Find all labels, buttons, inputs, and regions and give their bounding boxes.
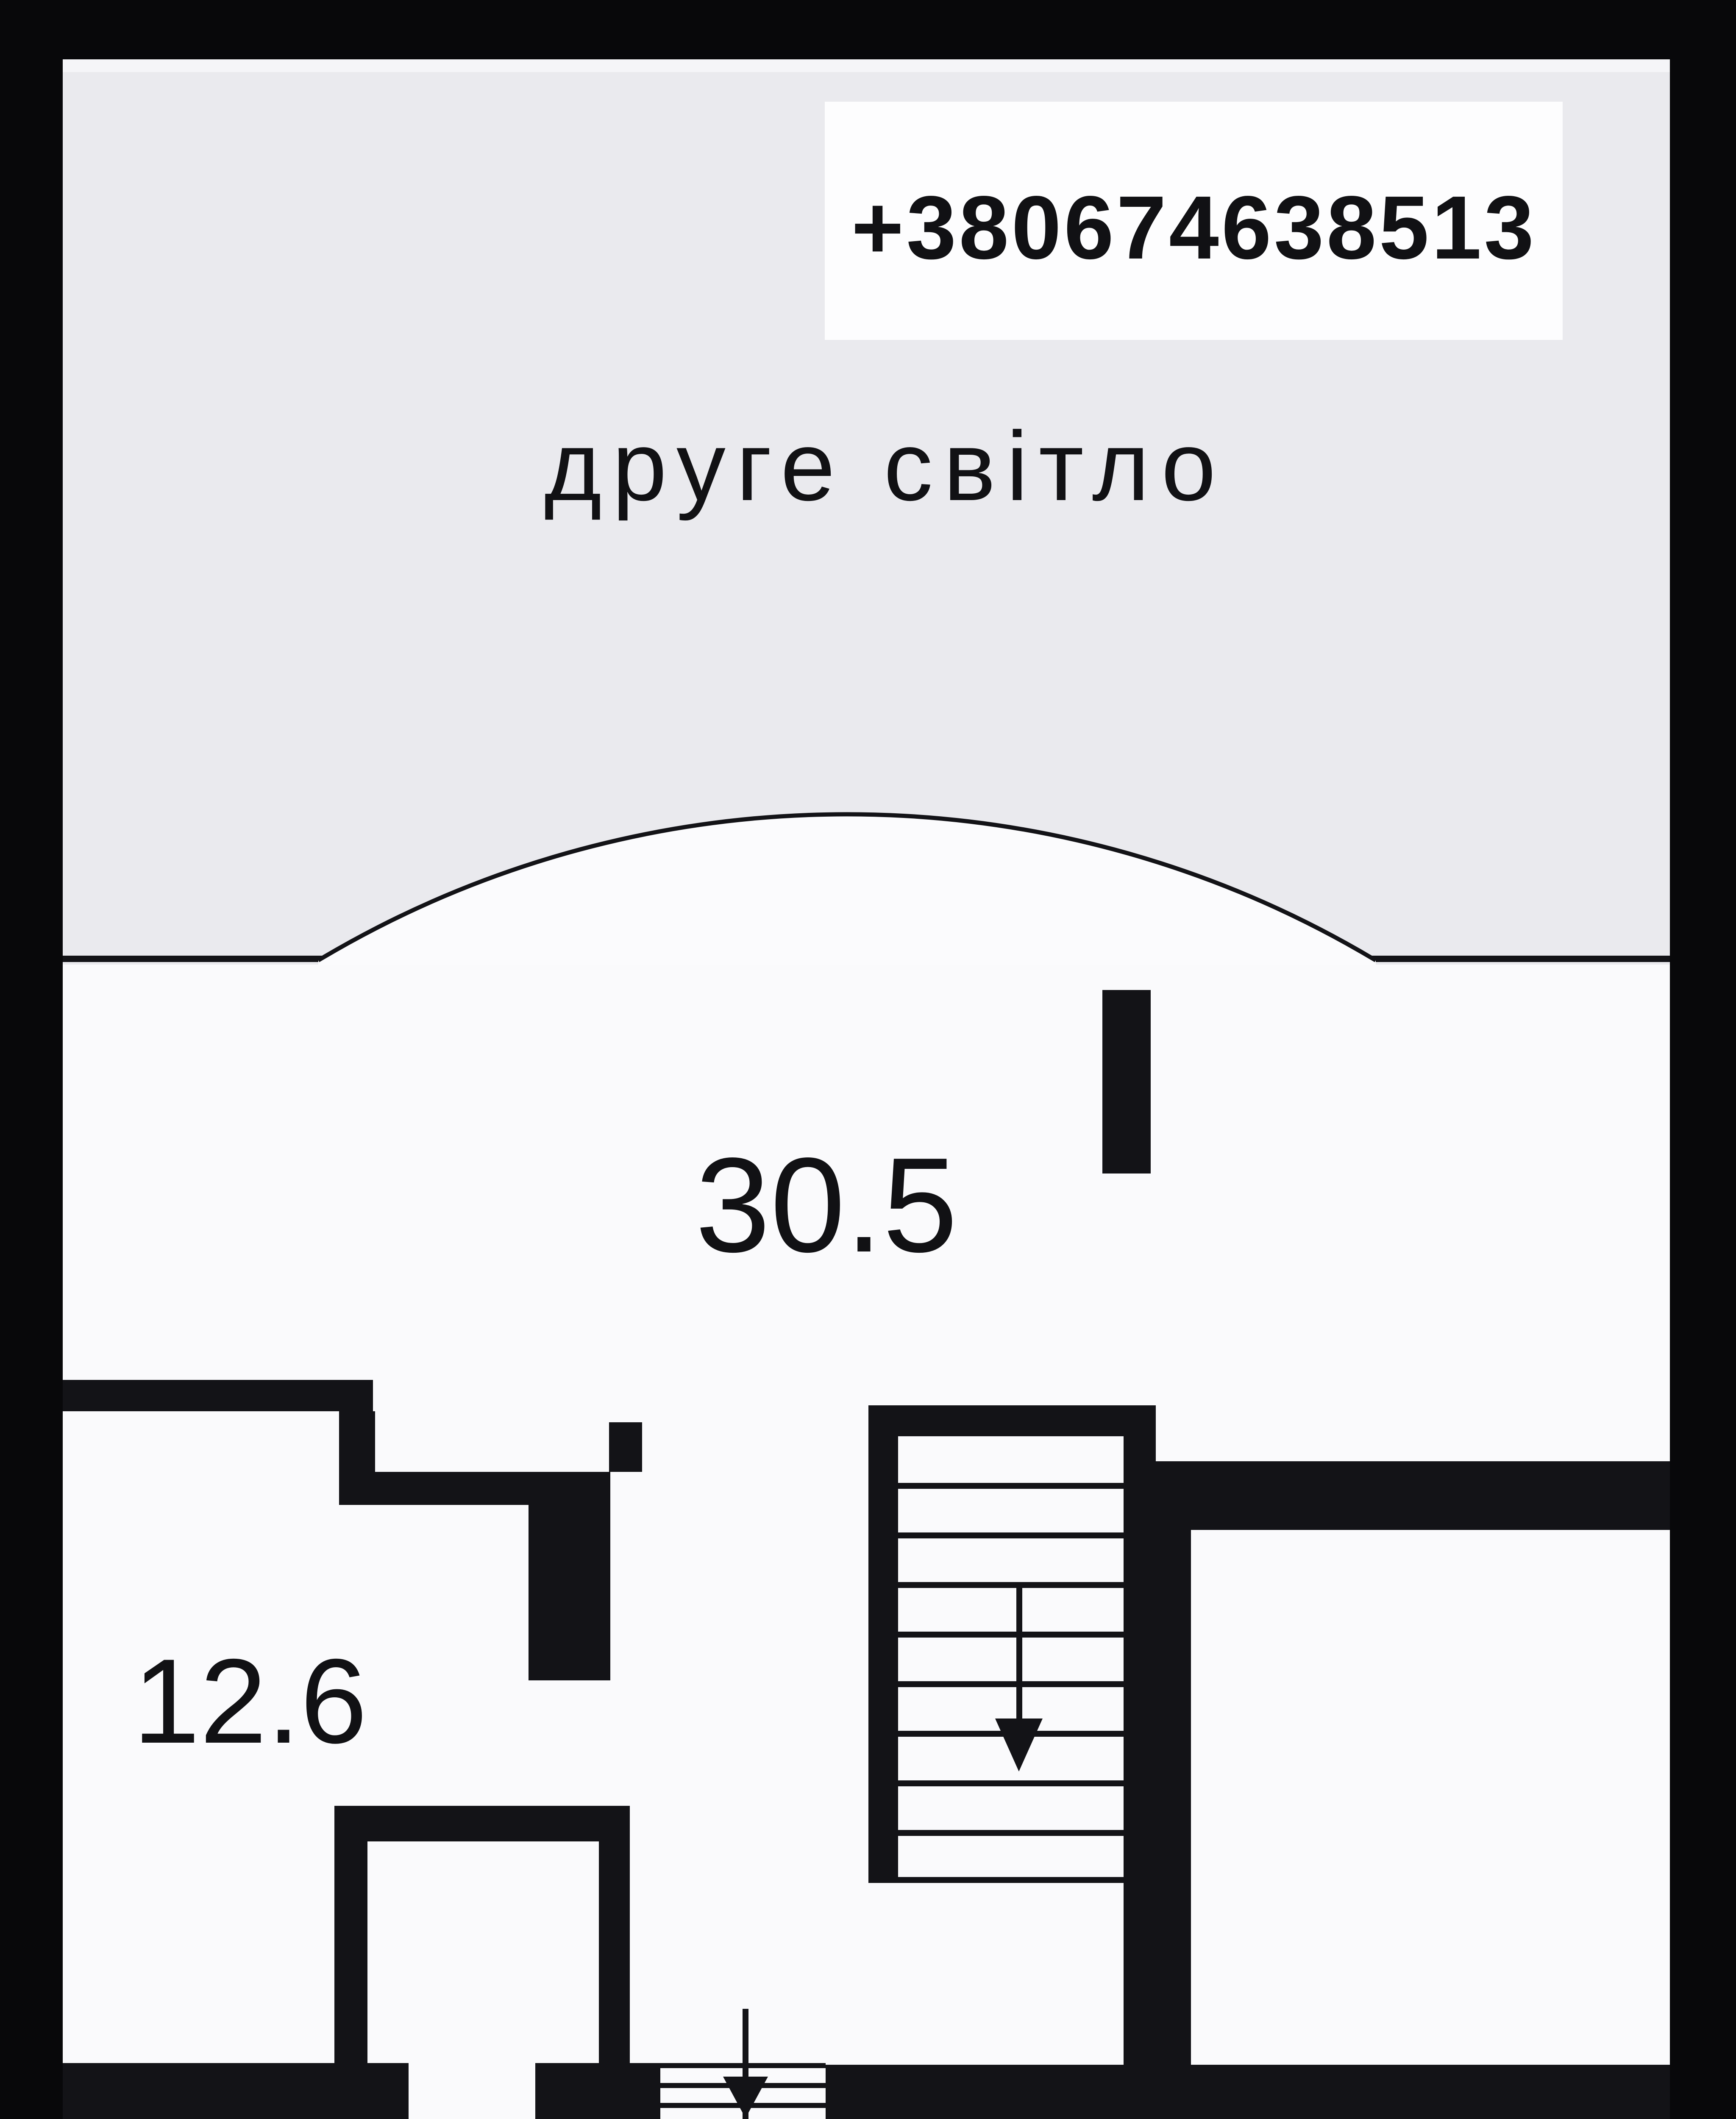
svg-text:12.6: 12.6	[133, 1634, 367, 1769]
svg-text:друге світло: друге світло	[544, 412, 1227, 521]
svg-text:30.5: 30.5	[696, 1130, 958, 1280]
svg-text:+380674638513: +380674638513	[851, 177, 1537, 278]
